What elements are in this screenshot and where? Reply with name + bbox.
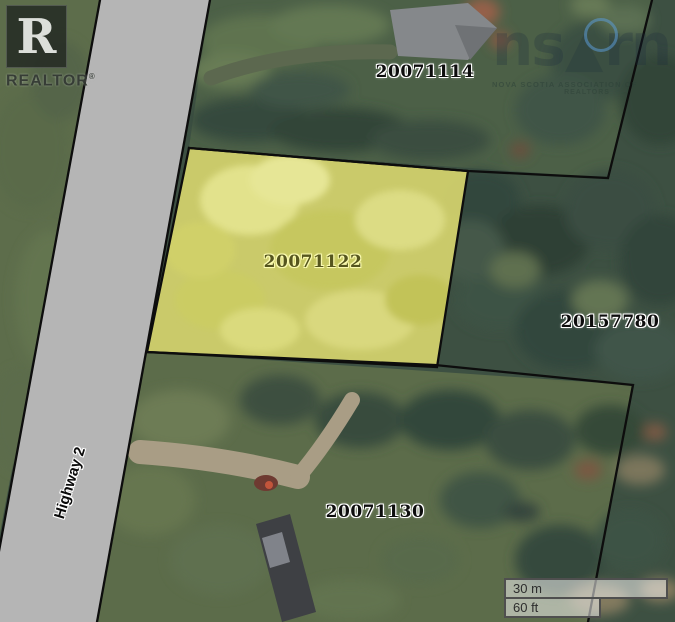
scale-bar: 30 m 60 ft (504, 578, 668, 618)
map-canvas[interactable]: 20071114 20071122 20157780 20071130 High… (0, 0, 675, 622)
realtor-logo-word: REALTOR® (6, 72, 116, 90)
realtor-logo: R REALTOR® (6, 5, 116, 90)
realtor-logo-block: R (6, 5, 67, 68)
parcel-label-20071122: 20071122 (264, 252, 363, 272)
parcel-label-20157780: 20157780 (561, 312, 660, 332)
parcel-label-20071130: 20071130 (326, 502, 425, 522)
registered-mark: ® (89, 72, 96, 81)
realtor-word-text: REALTOR (6, 72, 89, 89)
parcel-label-20071114: 20071114 (376, 62, 475, 82)
aerial-imagery (0, 0, 675, 622)
parked-car-highlight (265, 481, 273, 489)
scale-bar-imperial: 60 ft (504, 597, 601, 618)
realtor-logo-r: R (17, 13, 57, 61)
scale-bar-metric: 30 m (504, 578, 668, 599)
